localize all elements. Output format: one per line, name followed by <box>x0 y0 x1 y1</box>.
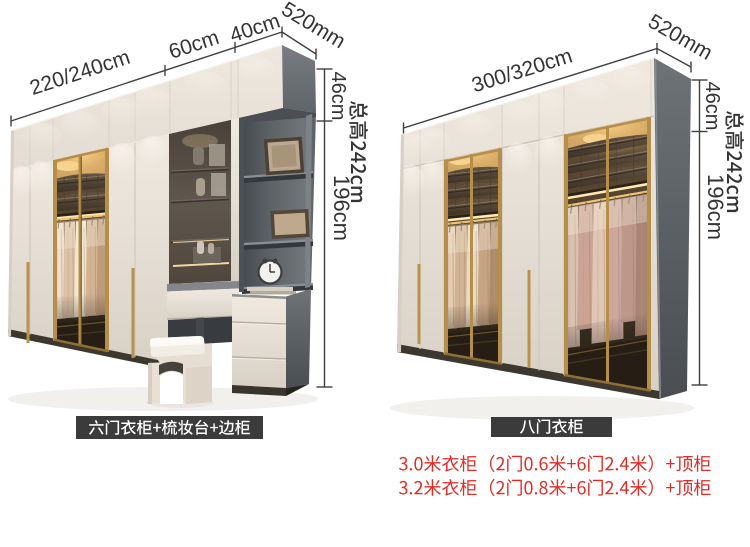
svg-text:196cm: 196cm <box>703 174 728 240</box>
svg-text:196cm: 196cm <box>329 175 354 241</box>
svg-text:46cm: 46cm <box>701 82 723 131</box>
svg-text:46cm: 46cm <box>327 72 349 121</box>
